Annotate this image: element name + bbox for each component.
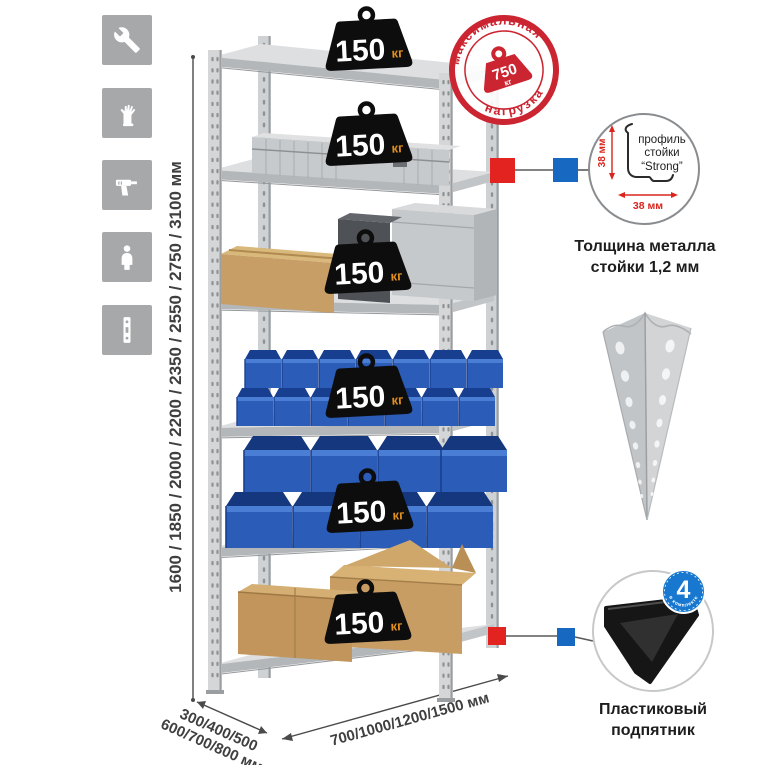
metal-thickness-caption: Толщина металла стойки 1,2 мм — [570, 237, 720, 279]
max-load-stamp: максимальная нагрузка 750 кг — [437, 0, 570, 136]
badge-value: 150 — [334, 380, 386, 416]
profile-label-line3: “Strong” — [641, 161, 683, 173]
product-infographic: 150 кг 150 кг 150 кг 150 кг — [0, 0, 765, 765]
badge-unit: кг — [391, 140, 404, 156]
badge-unit: кг — [392, 507, 405, 523]
badge-count-number: 4 — [677, 576, 691, 604]
feature-icon-post-strip — [102, 305, 152, 355]
badge-unit: кг — [390, 618, 403, 634]
profile-label-line1: профиль — [638, 134, 686, 146]
profile-dim-horizontal: 38 мм — [633, 200, 663, 212]
metal-thickness-line1: Толщина металла — [570, 237, 720, 258]
plastic-foot-line1: Пластиковый — [578, 700, 728, 721]
badge-value: 150 — [335, 495, 387, 531]
connector-blue-square-top — [553, 158, 578, 182]
badge-unit: кг — [391, 392, 404, 408]
foot-callout-connector — [488, 627, 593, 646]
person-icon — [113, 243, 141, 271]
angle-post-image — [600, 306, 694, 529]
post-profile-feature: 38 мм 38 мм профиль стойки “Strong” — [585, 110, 705, 235]
drill-icon — [113, 171, 141, 199]
plastic-foot-line2: подпятник — [578, 721, 728, 742]
included-count-badge: 4 в комплекте — [660, 568, 707, 615]
profile-label-line2: стойки — [644, 147, 679, 159]
connector-blue-square-bottom — [557, 628, 575, 646]
badge-value: 150 — [334, 33, 386, 69]
angle-post-left-face — [603, 313, 647, 520]
height-dimension-label: 1600 / 1850 / 2000 / 2200 / 2350 / 2550 … — [166, 27, 186, 727]
profile-dim-vertical: 38 мм — [597, 139, 608, 168]
feature-icon-gloves — [102, 88, 152, 138]
gloves-icon — [113, 99, 141, 127]
badge-unit: кг — [390, 268, 403, 284]
badge-value: 150 — [333, 606, 385, 642]
feature-icon-person — [102, 232, 152, 282]
load-badge-1: 150 кг — [323, 6, 413, 71]
connector-red-square-top — [490, 158, 515, 183]
connector-red-square-bottom — [488, 627, 506, 645]
feature-icon-drill — [102, 160, 152, 210]
metal-thickness-line2: стойки 1,2 мм — [570, 258, 720, 279]
badge-value: 150 — [333, 256, 385, 292]
profile-callout-connector — [490, 158, 589, 183]
wrench-icon — [113, 26, 141, 54]
badge-unit: кг — [391, 45, 404, 61]
badge-value: 150 — [334, 128, 386, 164]
height-dimension-line — [191, 55, 195, 702]
perforated-strip-icon — [113, 316, 141, 344]
feature-icon-assembly — [102, 15, 152, 65]
profile-label: профиль стойки “Strong” — [638, 134, 686, 173]
load-badge-2: 150 кг — [323, 101, 413, 166]
plastic-foot-caption: Пластиковый подпятник — [578, 700, 728, 742]
